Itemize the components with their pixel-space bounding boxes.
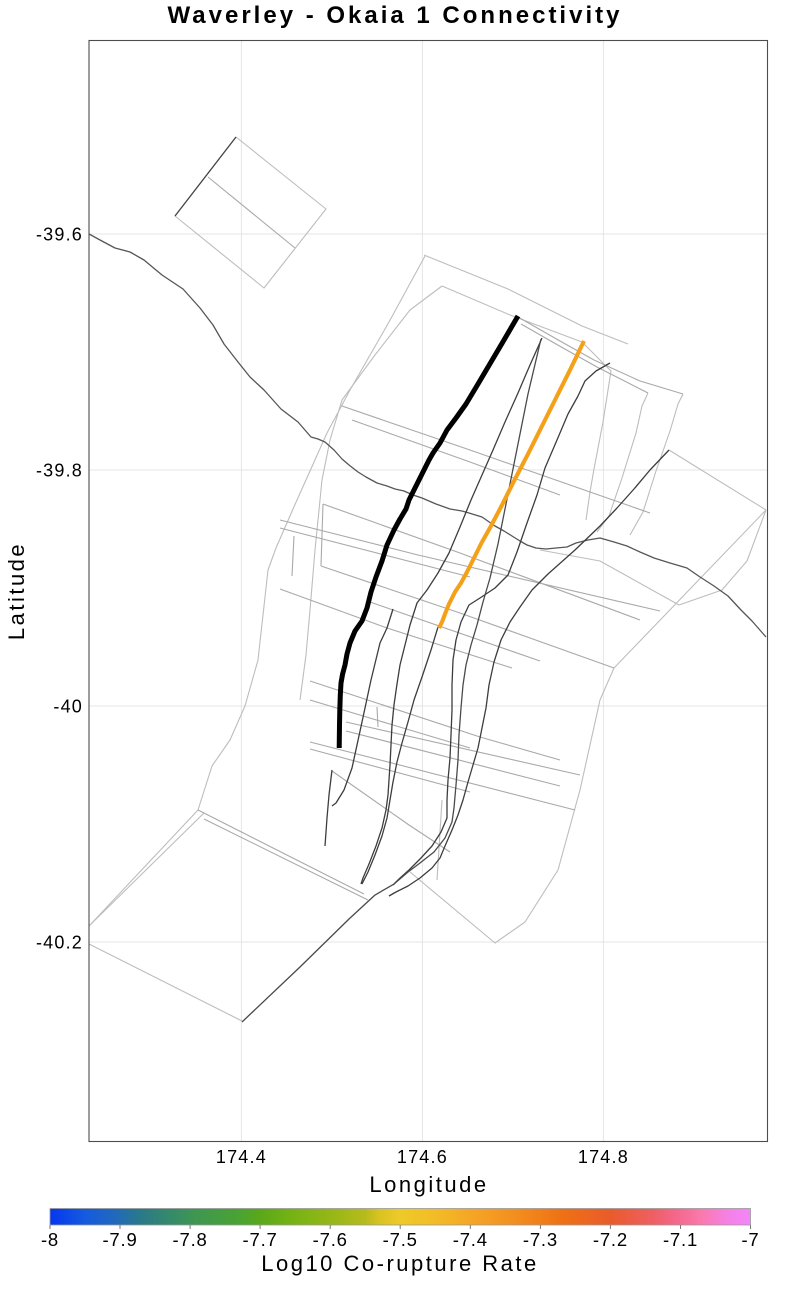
svg-text:-39.8: -39.8 — [36, 461, 83, 481]
svg-text:-39.6: -39.6 — [36, 225, 83, 245]
svg-text:174.8: 174.8 — [578, 1147, 629, 1167]
svg-text:-7.1: -7.1 — [663, 1229, 698, 1250]
svg-text:-7.2: -7.2 — [593, 1229, 628, 1250]
svg-text:-7: -7 — [741, 1229, 759, 1250]
svg-text:Latitude: Latitude — [4, 542, 29, 640]
svg-text:-7.6: -7.6 — [313, 1229, 348, 1250]
svg-text:174.4: 174.4 — [216, 1147, 267, 1167]
svg-text:-7.7: -7.7 — [243, 1229, 278, 1250]
svg-text:-8: -8 — [41, 1229, 59, 1250]
svg-text:174.6: 174.6 — [397, 1147, 448, 1167]
svg-text:-40.2: -40.2 — [36, 933, 83, 953]
svg-text:-7.9: -7.9 — [102, 1229, 137, 1250]
svg-text:Log10 Co-rupture Rate: Log10 Co-rupture Rate — [261, 1251, 539, 1276]
svg-text:Longitude: Longitude — [369, 1172, 488, 1197]
svg-text:-7.8: -7.8 — [173, 1229, 208, 1250]
svg-text:-7.4: -7.4 — [453, 1229, 488, 1250]
svg-text:Waverley - Okaia 1 Connectivit: Waverley - Okaia 1 Connectivity — [168, 2, 623, 29]
svg-text:-40: -40 — [53, 697, 83, 717]
svg-text:-7.5: -7.5 — [383, 1229, 418, 1250]
svg-text:-7.3: -7.3 — [523, 1229, 558, 1250]
